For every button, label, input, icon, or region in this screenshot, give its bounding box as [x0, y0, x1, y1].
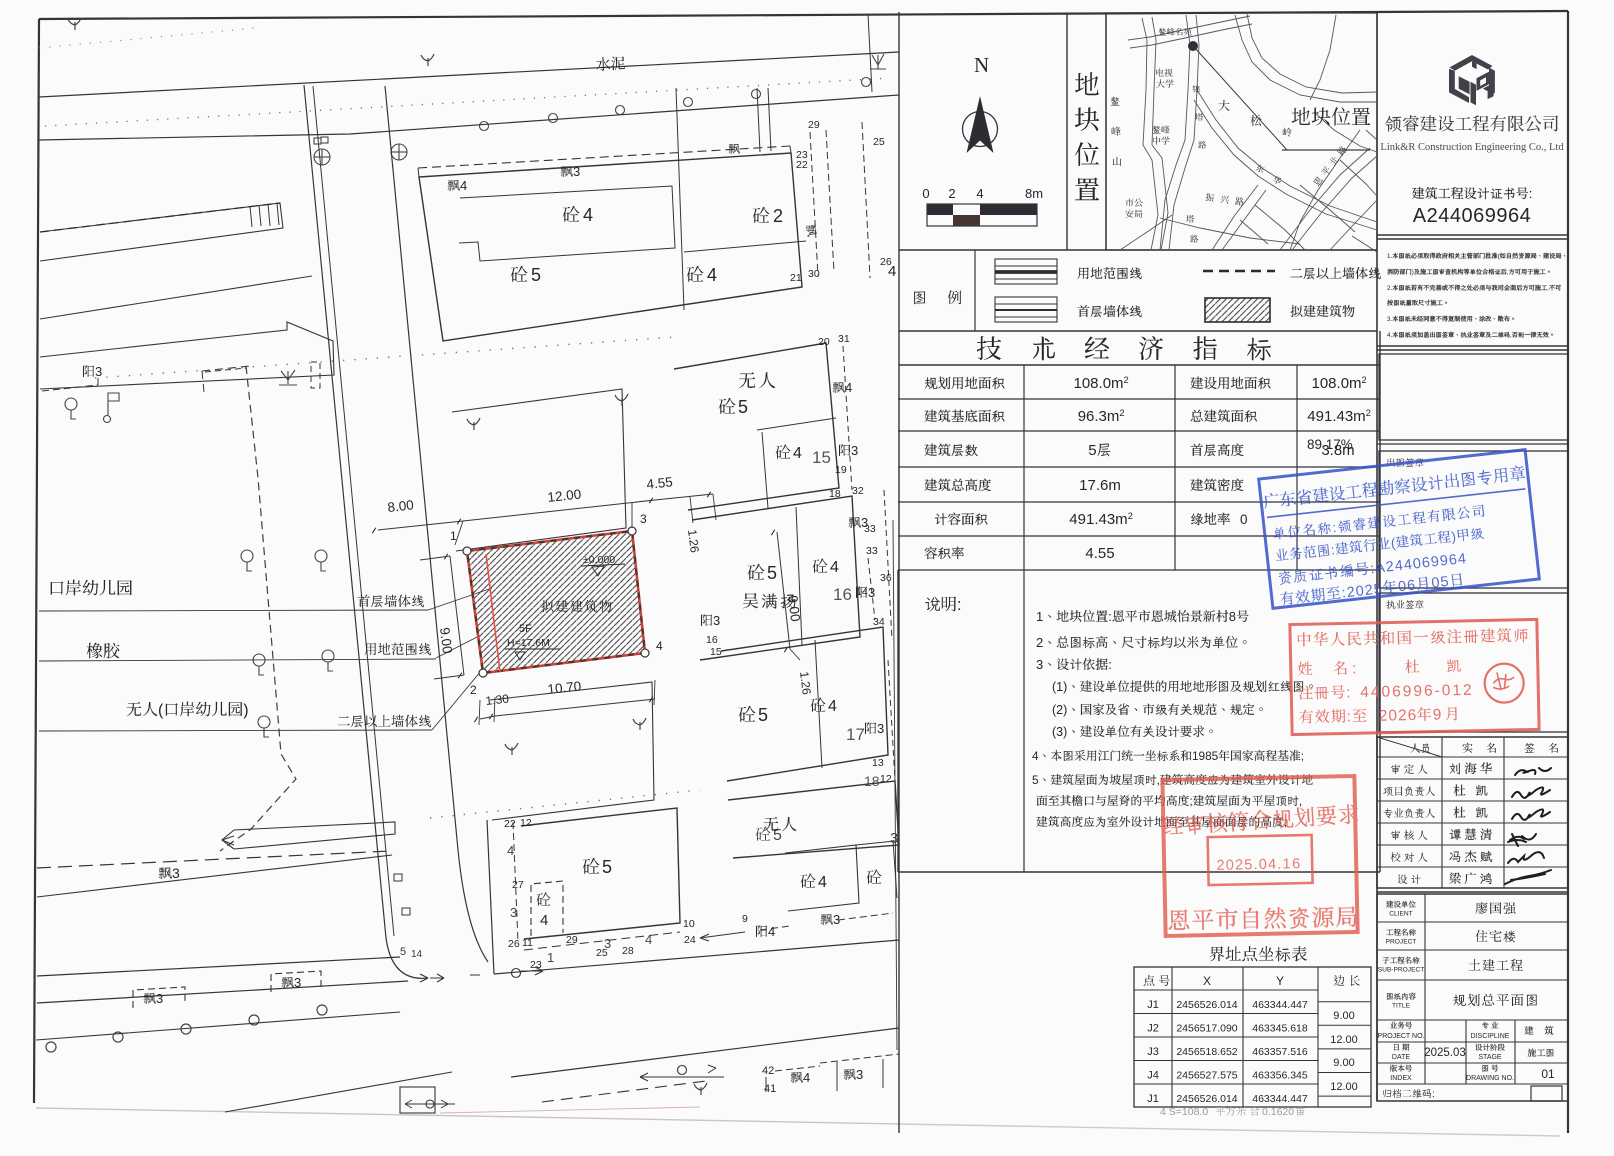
- svg-text:2: 2: [1119, 408, 1124, 418]
- svg-text:5: 5: [767, 563, 779, 583]
- svg-text:(2): (2): [1052, 703, 1067, 717]
- svg-text:INDEX: INDEX: [1390, 1075, 1412, 1082]
- svg-text:12: 12: [520, 817, 532, 829]
- svg-text:2025.03: 2025.03: [1424, 1047, 1466, 1059]
- svg-text:96.3m: 96.3m: [1078, 408, 1120, 425]
- svg-text:,: ,: [1157, 773, 1160, 787]
- svg-text:8.00: 8.00: [387, 497, 415, 515]
- svg-text:06: 06: [1397, 577, 1417, 595]
- svg-text::: :: [1352, 660, 1361, 677]
- svg-text:4: 4: [803, 1070, 810, 1085]
- svg-text:2: 2: [1366, 408, 1371, 418]
- svg-text:1.: 1.: [1387, 253, 1392, 260]
- svg-text::: :: [1332, 520, 1339, 535]
- svg-text::: :: [1432, 1089, 1435, 1100]
- svg-text:2456527.575: 2456527.575: [1176, 1070, 1237, 1082]
- svg-text:Link&R Construction Engineerin: Link&R Construction Engineering Co., Ltd: [1380, 142, 1564, 153]
- svg-text::: :: [1330, 542, 1336, 557]
- svg-text:4: 4: [1032, 749, 1039, 763]
- svg-text::: :: [1347, 708, 1353, 725]
- svg-text:DRAWING NO.: DRAWING NO.: [1466, 1075, 1514, 1082]
- svg-text:5: 5: [602, 857, 614, 877]
- svg-text::: :: [1108, 657, 1112, 672]
- svg-text:2456517.090: 2456517.090: [1176, 1023, 1237, 1035]
- svg-text:2: 2: [773, 206, 786, 226]
- svg-text:4: 4: [656, 639, 663, 653]
- svg-text:3: 3: [890, 830, 898, 847]
- svg-text:89.17%: 89.17%: [1307, 437, 1353, 452]
- svg-text::A244069964: :A244069964: [1369, 551, 1467, 578]
- svg-text:,: ,: [1510, 332, 1512, 339]
- svg-text:13: 13: [872, 757, 884, 769]
- svg-text:463344.447: 463344.447: [1252, 999, 1308, 1011]
- svg-text:463345.618: 463345.618: [1252, 1023, 1308, 1035]
- svg-text:2456526.014: 2456526.014: [1176, 1093, 1237, 1105]
- svg-text:3: 3: [640, 512, 647, 526]
- svg-text:25: 25: [873, 136, 885, 148]
- svg-text:3: 3: [856, 1067, 863, 1082]
- svg-text:1.26: 1.26: [685, 529, 702, 554]
- svg-text:±0.000: ±0.000: [583, 554, 615, 566]
- svg-text:PROJECT NO.: PROJECT NO.: [1378, 1033, 1425, 1040]
- svg-text:2.: 2.: [1387, 285, 1392, 292]
- svg-text:3: 3: [713, 613, 720, 628]
- svg-text:4: 4: [818, 874, 829, 891]
- svg-text:2456518.652: 2456518.652: [1176, 1046, 1237, 1058]
- svg-text::: :: [1529, 186, 1533, 201]
- svg-text:3: 3: [1036, 657, 1043, 672]
- svg-text:4: 4: [707, 265, 720, 285]
- svg-text:2025.04.1: 2025.04.1: [1216, 856, 1292, 874]
- svg-text:3: 3: [156, 991, 163, 1006]
- svg-text:108.0m: 108.0m: [1312, 375, 1362, 392]
- svg-text:16: 16: [706, 634, 718, 646]
- svg-text:463344.447: 463344.447: [1252, 1093, 1308, 1105]
- svg-text:TITLE: TITLE: [1392, 1003, 1411, 1010]
- svg-text:3: 3: [95, 364, 102, 379]
- svg-text:H=17.6M: H=17.6M: [507, 637, 550, 649]
- svg-text:1: 1: [1036, 609, 1043, 624]
- svg-text:33: 33: [864, 523, 876, 535]
- svg-text:): ): [243, 702, 248, 719]
- svg-text:8m: 8m: [1025, 186, 1043, 201]
- svg-text:(1): (1): [1052, 680, 1067, 694]
- svg-text:0: 0: [1240, 512, 1248, 527]
- svg-text:N: N: [974, 53, 989, 77]
- svg-text:4: 4: [768, 924, 775, 939]
- svg-text:29: 29: [808, 119, 820, 131]
- svg-text:21: 21: [790, 272, 802, 284]
- svg-text:11: 11: [522, 937, 533, 949]
- svg-text:4: 4: [830, 559, 841, 576]
- svg-text:19: 19: [835, 464, 847, 476]
- svg-text:4 S=108.0: 4 S=108.0: [1160, 1106, 1208, 1118]
- svg-text:J1: J1: [1147, 999, 1159, 1011]
- svg-text:17.6m: 17.6m: [1079, 477, 1121, 494]
- svg-text:2026: 2026: [1379, 707, 1418, 725]
- svg-text:4: 4: [828, 698, 839, 715]
- svg-text:01: 01: [1541, 1067, 1555, 1081]
- svg-text:(: (: [1390, 535, 1397, 550]
- svg-text:4.: 4.: [1387, 332, 1392, 339]
- svg-text:4: 4: [460, 178, 467, 193]
- svg-text:(: (: [1498, 253, 1501, 260]
- svg-text:5: 5: [531, 265, 544, 285]
- svg-text:J3: J3: [1147, 1046, 1159, 1058]
- svg-text:4: 4: [793, 445, 804, 462]
- svg-text:22: 22: [796, 159, 808, 171]
- svg-text:4: 4: [507, 843, 514, 858]
- svg-text:STAGE: STAGE: [1478, 1054, 1502, 1061]
- svg-text:12.00: 12.00: [547, 487, 582, 505]
- svg-text:15: 15: [710, 646, 722, 658]
- svg-text:12.00: 12.00: [1330, 1034, 1358, 1046]
- svg-text:05: 05: [1431, 574, 1451, 592]
- svg-text:16: 16: [833, 585, 852, 604]
- svg-text:4: 4: [540, 912, 548, 929]
- svg-text:,: ,: [1547, 285, 1549, 292]
- svg-text:SUB-PROJECT: SUB-PROJECT: [1378, 967, 1425, 974]
- svg-text:A244069964: A244069964: [1413, 205, 1531, 227]
- svg-text:Y: Y: [1276, 974, 1284, 988]
- svg-text:): ): [1412, 269, 1414, 276]
- svg-text:36: 36: [880, 572, 892, 584]
- svg-text:108.0m: 108.0m: [1074, 375, 1124, 392]
- svg-text:4.55: 4.55: [1085, 545, 1114, 562]
- svg-text:9: 9: [1433, 706, 1442, 723]
- svg-text:27: 27: [512, 879, 524, 891]
- svg-text:3: 3: [877, 721, 884, 736]
- svg-text:5: 5: [773, 827, 784, 844]
- svg-text:;: ;: [1301, 749, 1304, 763]
- svg-text:2: 2: [1036, 635, 1043, 650]
- svg-text:463357.516: 463357.516: [1252, 1046, 1308, 1058]
- svg-text:(3): (3): [1052, 725, 1067, 739]
- svg-text:24: 24: [684, 934, 696, 946]
- svg-text:9: 9: [742, 913, 748, 925]
- svg-text:3: 3: [172, 865, 180, 881]
- svg-text:9.00: 9.00: [1333, 1010, 1354, 1022]
- svg-text:2: 2: [1362, 375, 1367, 385]
- svg-text:0.1620: 0.1620: [1262, 1106, 1294, 1118]
- svg-text:4: 4: [976, 186, 983, 201]
- svg-text:0: 0: [922, 186, 929, 201]
- svg-text:17: 17: [846, 725, 865, 744]
- svg-text:4.55: 4.55: [646, 474, 674, 492]
- svg-text:22: 22: [504, 818, 516, 830]
- svg-text:5: 5: [1032, 773, 1039, 787]
- svg-text:5: 5: [1088, 442, 1096, 459]
- svg-text:2: 2: [1124, 375, 1129, 385]
- svg-text::: :: [957, 596, 962, 614]
- svg-text::: :: [1108, 609, 1112, 624]
- svg-text:4406996-012: 4406996-012: [1360, 682, 1474, 701]
- svg-text:26: 26: [508, 938, 520, 950]
- svg-text::: :: [1346, 684, 1352, 701]
- svg-text:1985: 1985: [1192, 749, 1219, 763]
- svg-text:10: 10: [683, 918, 695, 930]
- svg-text:33: 33: [866, 545, 878, 557]
- svg-text:12.00: 12.00: [1330, 1081, 1358, 1093]
- svg-text:X: X: [1203, 974, 1211, 988]
- svg-text:J2: J2: [1147, 1023, 1159, 1035]
- svg-text:8: 8: [1229, 609, 1236, 624]
- svg-text:14: 14: [411, 949, 423, 960]
- svg-text:20: 20: [818, 336, 830, 348]
- svg-text:10.70: 10.70: [547, 679, 582, 697]
- svg-text:DATE: DATE: [1392, 1054, 1410, 1061]
- svg-text:3: 3: [294, 975, 301, 990]
- svg-text:5F: 5F: [519, 623, 532, 635]
- svg-text:2: 2: [948, 186, 955, 201]
- svg-text:4: 4: [583, 205, 596, 225]
- svg-text:1.26: 1.26: [797, 671, 814, 696]
- svg-text:14: 14: [856, 586, 868, 598]
- svg-text:CLIENT: CLIENT: [1389, 911, 1412, 918]
- svg-text:5: 5: [758, 705, 770, 725]
- svg-text:4: 4: [645, 932, 652, 947]
- svg-text:,: ,: [1507, 269, 1509, 276]
- svg-text:3: 3: [573, 164, 580, 179]
- svg-text:463356.345: 463356.345: [1252, 1070, 1308, 1082]
- svg-text:491.43m: 491.43m: [1307, 408, 1365, 425]
- svg-text:28: 28: [622, 945, 634, 957]
- svg-text:6: 6: [1292, 856, 1300, 872]
- svg-text:5: 5: [738, 397, 750, 417]
- svg-text:2: 2: [1128, 511, 1133, 521]
- svg-text:;: ;: [1189, 794, 1192, 808]
- svg-text:42: 42: [762, 1065, 774, 1077]
- svg-text:9.00: 9.00: [1333, 1057, 1354, 1069]
- svg-text:32: 32: [852, 485, 864, 497]
- svg-text:3: 3: [510, 905, 517, 920]
- svg-text:3: 3: [604, 936, 611, 951]
- svg-text:(: (: [158, 702, 164, 719]
- svg-text:DISCIPLINE: DISCIPLINE: [1471, 1033, 1510, 1040]
- svg-text:4: 4: [888, 263, 896, 280]
- svg-text:9.00: 9.00: [437, 627, 455, 655]
- svg-text:,: ,: [1299, 794, 1302, 808]
- svg-text:491.43m: 491.43m: [1069, 511, 1127, 528]
- svg-text:3: 3: [851, 443, 858, 458]
- svg-text:J4: J4: [1147, 1070, 1159, 1082]
- svg-text:1: 1: [547, 950, 554, 965]
- svg-text:2456526.014: 2456526.014: [1176, 999, 1237, 1011]
- svg-text:): ): [1451, 529, 1458, 544]
- svg-text:5: 5: [400, 946, 406, 958]
- svg-text:PROJECT: PROJECT: [1386, 939, 1417, 946]
- svg-text:15: 15: [812, 448, 831, 467]
- svg-text:18: 18: [829, 488, 841, 500]
- svg-text:31: 31: [838, 333, 850, 345]
- svg-text:18: 18: [864, 773, 880, 789]
- svg-text:2: 2: [470, 683, 477, 697]
- svg-text:3.: 3.: [1387, 316, 1392, 323]
- svg-text:1.30: 1.30: [485, 692, 510, 708]
- svg-text:J1: J1: [1147, 1093, 1159, 1105]
